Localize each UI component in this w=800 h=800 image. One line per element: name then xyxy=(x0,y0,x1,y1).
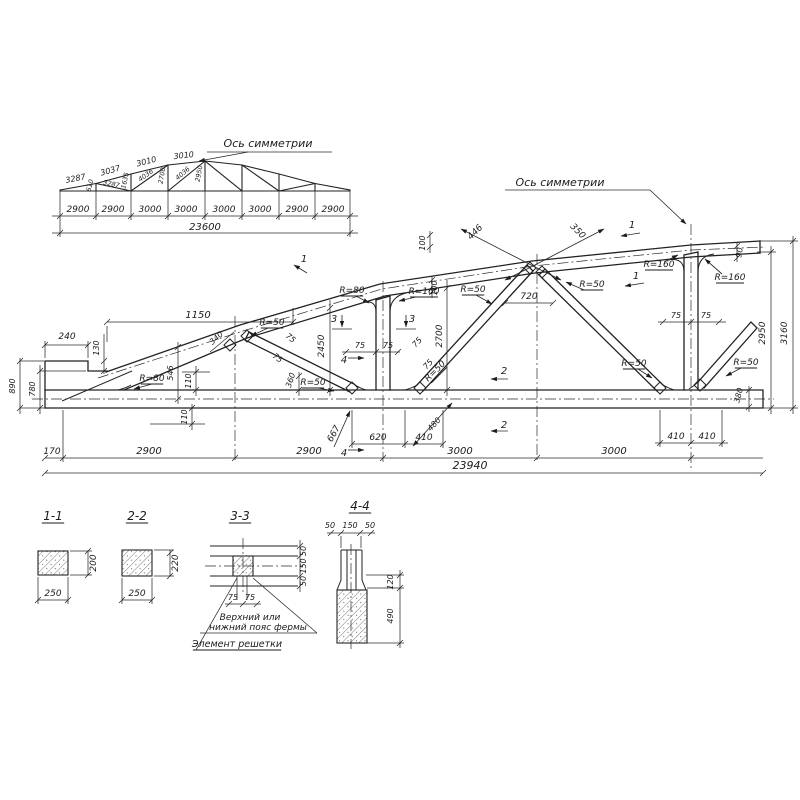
dim-label: 250 xyxy=(44,589,61,599)
dim-label: 3000 xyxy=(447,446,472,457)
dim-label: 410 xyxy=(667,432,684,442)
dim-label: 75 xyxy=(383,341,393,350)
dim-label: R=160 xyxy=(715,273,746,283)
dim-label: 2700 xyxy=(157,167,168,185)
dim-label: 546 xyxy=(166,365,175,380)
dim-label: 4 xyxy=(341,355,347,366)
dim-label: 1 xyxy=(301,254,307,265)
dim-label: 490 xyxy=(386,608,395,623)
dim-label: 75 xyxy=(355,341,365,350)
section-1-1-cut xyxy=(38,551,68,575)
section-2-2-cut xyxy=(122,550,152,576)
dim-label: 480 xyxy=(426,416,443,433)
technical-drawing-sheet: Ось симметрии328730373010301061032871635… xyxy=(0,0,800,800)
dim-label: 50 xyxy=(299,546,308,556)
dim-label: 3 xyxy=(331,314,337,325)
dim-label: 620 xyxy=(369,433,386,443)
dim-label: 780 xyxy=(28,381,37,396)
dim-label: 110 xyxy=(184,373,193,388)
dim-label: 150 xyxy=(299,558,308,573)
dim-label: 3010 xyxy=(135,155,157,169)
dim-label: 3287 xyxy=(65,172,88,185)
dim-label: 2900 xyxy=(102,205,125,215)
dim-label: 2900 xyxy=(136,446,161,457)
main-view-labels: Ось симметрии1150240130890780546110110R=… xyxy=(8,176,790,472)
dim-label: 170 xyxy=(43,447,60,457)
dim-label: 3160 xyxy=(780,321,790,344)
dim-label: 1635 xyxy=(119,172,130,190)
dim-label: R=50 xyxy=(259,318,285,328)
truss-drawing-canvas: Ось симметрии328730373010301061032871635… xyxy=(0,0,800,800)
dim-label: 2950 xyxy=(758,321,768,344)
dim-label: 100 xyxy=(418,235,427,250)
section-title-2-2: 2-2 xyxy=(127,509,147,523)
section-4-4-cut xyxy=(337,590,367,643)
dim-label: 3000 xyxy=(601,446,626,457)
dim-label: 150 xyxy=(342,521,357,530)
dim-label: 50 xyxy=(365,521,375,530)
dim-label: 1150 xyxy=(185,310,210,321)
dim-label: R=50 xyxy=(579,280,605,290)
dim-label: 4 xyxy=(341,448,347,459)
dim-label: 23940 xyxy=(453,459,488,472)
dim-label: 667 xyxy=(326,424,343,444)
dim-label: 360 xyxy=(284,372,297,389)
dim-label: 410 xyxy=(415,433,432,443)
dim-label: R=50 xyxy=(621,359,647,369)
dim-label: 410 xyxy=(698,432,715,442)
dim-label: 23600 xyxy=(189,222,221,233)
dim-label: 340 xyxy=(208,330,225,347)
dim-label: 3000 xyxy=(139,205,162,215)
dim-label: 75 xyxy=(284,331,298,344)
dim-label: 3000 xyxy=(175,205,198,215)
dim-label: 75 xyxy=(410,336,424,350)
dim-label: 890 xyxy=(8,378,17,393)
dim-label: 3 xyxy=(409,314,415,325)
dim-label: 2700 xyxy=(435,324,445,347)
dim-label: 3000 xyxy=(213,205,236,215)
dim-label: 720 xyxy=(520,292,537,302)
dim-label: 3037 xyxy=(99,163,122,177)
section-title-1-1: 1-1 xyxy=(43,509,63,523)
dim-label: 1 xyxy=(629,220,635,231)
dim-label: 2450 xyxy=(317,334,327,357)
dim-label: 3000 xyxy=(249,205,272,215)
note-chord-line1: Верхний или xyxy=(220,613,281,623)
note-lattice-element: Элемент решетки xyxy=(191,639,282,650)
dim-label: R=80 xyxy=(139,374,165,384)
dim-label: R=80 xyxy=(339,286,365,296)
dim-label: 220 xyxy=(171,554,181,571)
dim-label: 446 xyxy=(466,223,485,242)
dim-label: 100 xyxy=(430,280,439,295)
dim-label: 2900 xyxy=(286,205,309,215)
dim-label: 610 xyxy=(85,179,96,193)
dim-label: 2 xyxy=(501,366,507,377)
dim-label: R=50 xyxy=(733,358,759,368)
dim-label: 2900 xyxy=(322,205,345,215)
dim-label: 50 xyxy=(299,576,308,586)
dim-label: 2950 xyxy=(194,165,205,183)
dim-label: 1 xyxy=(633,271,639,282)
dim-label: 3010 xyxy=(173,150,194,161)
dim-label: 120 xyxy=(386,574,395,589)
axis-of-symmetry-label: Ось симметрии xyxy=(224,137,313,150)
dim-label: R=160 xyxy=(644,260,675,270)
dim-label: 75 xyxy=(245,593,255,602)
dim-label: 2 xyxy=(501,420,507,431)
dim-label: 2900 xyxy=(67,205,90,215)
dim-label: 75 xyxy=(701,311,711,320)
dim-label: 240 xyxy=(58,332,75,342)
dim-label: 90 xyxy=(734,247,745,259)
dim-label: 75 xyxy=(228,593,238,602)
section-title-3-3: 3-3 xyxy=(230,509,250,523)
dim-label: 75 xyxy=(671,311,681,320)
dim-label: 2900 xyxy=(296,446,321,457)
dim-label: 200 xyxy=(89,554,99,571)
dim-label: 250 xyxy=(128,589,145,599)
axis-of-symmetry-label: Ось симметрии xyxy=(516,176,605,189)
section-title-4-4: 4-4 xyxy=(350,499,370,513)
dim-label: 130 xyxy=(92,340,101,355)
dim-label: R=50 xyxy=(460,285,486,295)
dim-label: 350 xyxy=(568,222,587,241)
dim-label: R=50 xyxy=(300,378,326,388)
note-chord-line2: нижний пояс фермы xyxy=(209,623,307,633)
dim-label: 110 xyxy=(180,409,189,424)
dim-label: 50 xyxy=(325,521,335,530)
